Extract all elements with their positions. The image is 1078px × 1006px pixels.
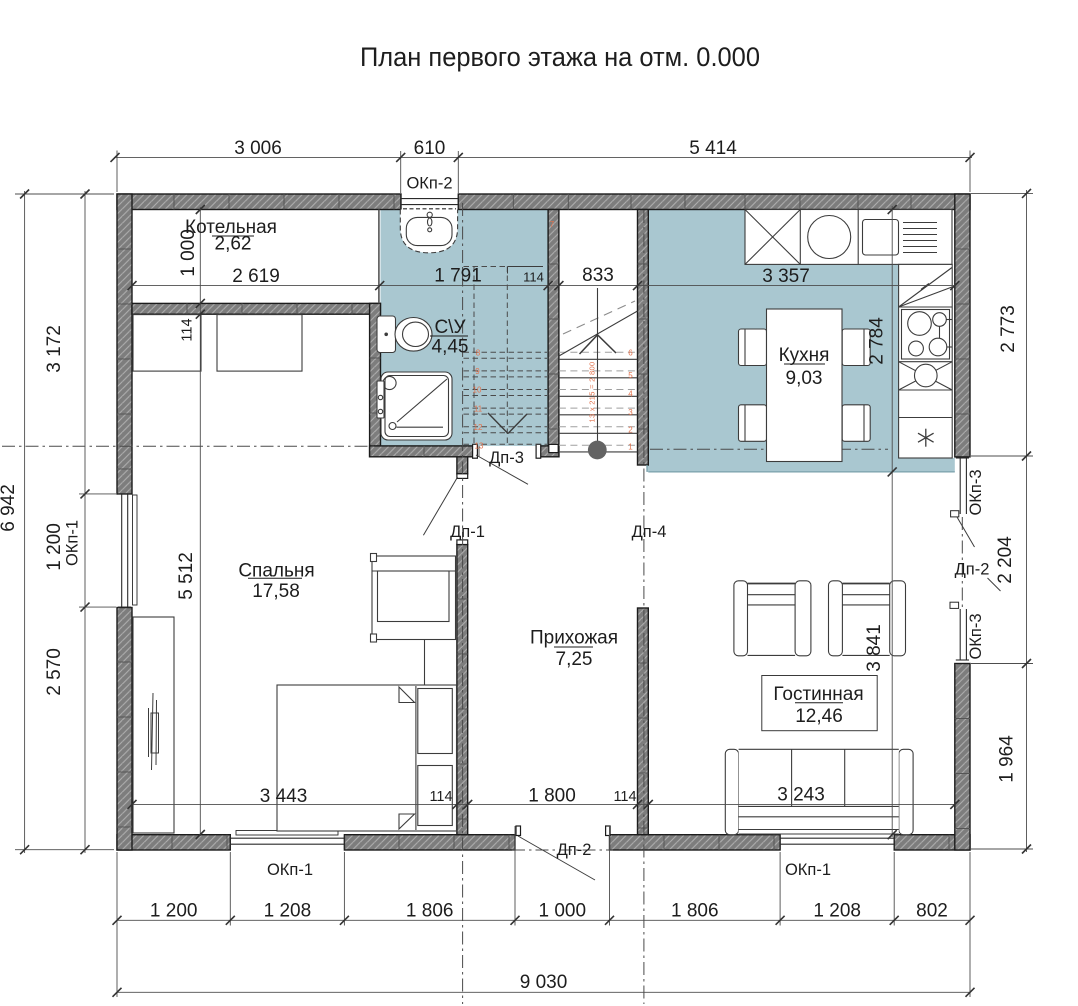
svg-text:ОКп-1: ОКп-1: [785, 861, 831, 879]
svg-text:9 030: 9 030: [520, 972, 568, 993]
svg-text:Гостинная: Гостинная: [773, 684, 863, 705]
svg-text:114: 114: [180, 318, 196, 341]
svg-text:4: 4: [628, 390, 633, 399]
svg-text:Дп-1: Дп-1: [450, 523, 485, 541]
svg-text:9: 9: [475, 367, 480, 376]
svg-text:10: 10: [473, 386, 482, 395]
svg-text:1 964: 1 964: [997, 735, 1018, 783]
svg-text:802: 802: [916, 901, 948, 922]
svg-text:Дп-4: Дп-4: [632, 523, 667, 541]
svg-text:3 006: 3 006: [234, 138, 282, 159]
svg-text:1: 1: [628, 443, 633, 452]
svg-text:2 204: 2 204: [995, 536, 1016, 584]
svg-text:6 942: 6 942: [0, 484, 19, 532]
svg-text:1 208: 1 208: [813, 901, 861, 922]
svg-text:1 806: 1 806: [671, 901, 719, 922]
svg-text:2 570: 2 570: [44, 648, 65, 696]
svg-text:1 791: 1 791: [434, 266, 482, 287]
svg-text:12: 12: [474, 423, 483, 432]
svg-text:5 414: 5 414: [689, 138, 737, 159]
svg-text:2: 2: [628, 426, 633, 435]
svg-text:12,46: 12,46: [795, 706, 843, 727]
svg-text:С\У: С\У: [434, 317, 466, 338]
svg-text:610: 610: [414, 138, 446, 159]
svg-text:1 208: 1 208: [264, 901, 312, 922]
svg-text:11: 11: [474, 404, 483, 413]
svg-text:13: 13: [475, 442, 484, 451]
svg-text:8: 8: [476, 349, 481, 358]
svg-text:7: 7: [550, 220, 555, 229]
svg-text:3 841: 3 841: [864, 624, 885, 672]
svg-text:3 443: 3 443: [260, 786, 308, 807]
svg-text:ОКп-2: ОКп-2: [406, 175, 452, 193]
svg-text:3 172: 3 172: [44, 325, 65, 373]
svg-text:7,25: 7,25: [556, 649, 593, 670]
svg-text:1 800: 1 800: [528, 786, 576, 807]
svg-text:3 243: 3 243: [777, 785, 825, 806]
svg-text:1 806: 1 806: [406, 901, 454, 922]
svg-text:Дп-2: Дп-2: [955, 561, 990, 579]
svg-text:Дп-2: Дп-2: [557, 841, 592, 859]
svg-text:3: 3: [628, 408, 633, 417]
svg-text:114: 114: [613, 789, 636, 805]
svg-text:1 200: 1 200: [150, 901, 198, 922]
svg-text:2 784: 2 784: [867, 317, 888, 365]
svg-text:2,62: 2,62: [215, 234, 252, 255]
svg-text:ОКп-3: ОКп-3: [967, 613, 985, 659]
svg-text:1 200: 1 200: [44, 523, 65, 571]
svg-text:5: 5: [628, 371, 633, 380]
svg-text:114: 114: [429, 789, 452, 805]
svg-text:2 619: 2 619: [232, 266, 280, 287]
svg-text:1 000: 1 000: [539, 901, 587, 922]
svg-text:План первого этажа на отм. 0.0: План первого этажа на отм. 0.000: [360, 42, 760, 72]
svg-text:13 х 215 = 2 800: 13 х 215 = 2 800: [588, 362, 597, 423]
svg-text:2 773: 2 773: [998, 305, 1019, 353]
svg-text:3 357: 3 357: [762, 266, 810, 287]
svg-text:114: 114: [523, 270, 544, 285]
svg-text:ОКп-3: ОКп-3: [967, 469, 985, 515]
svg-text:17,58: 17,58: [252, 581, 300, 602]
svg-text:9,03: 9,03: [786, 368, 823, 389]
svg-text:4,45: 4,45: [432, 337, 469, 358]
svg-text:ОКп-1: ОКп-1: [267, 861, 313, 879]
svg-text:5 512: 5 512: [176, 552, 197, 600]
svg-text:6: 6: [628, 349, 633, 358]
svg-text:Прихожая: Прихожая: [530, 628, 618, 649]
svg-text:Дп-3: Дп-3: [489, 449, 524, 467]
svg-text:Кухня: Кухня: [779, 345, 830, 366]
svg-text:ОКп-1: ОКп-1: [64, 520, 82, 566]
svg-text:833: 833: [582, 265, 614, 286]
